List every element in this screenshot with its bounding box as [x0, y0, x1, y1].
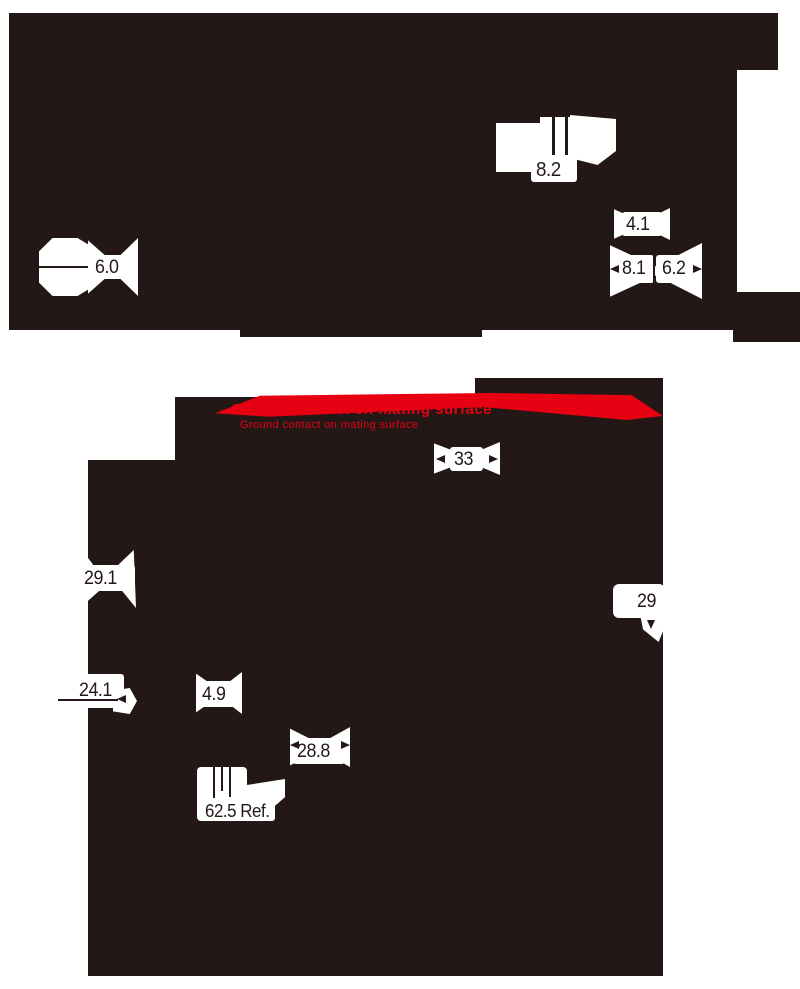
nut-centerline [39, 266, 91, 268]
arrow-down-icon [104, 597, 112, 606]
arrow-right-icon [693, 265, 702, 273]
dimension-label: 6.2 [662, 259, 685, 278]
silhouette-bottom-main [175, 397, 663, 976]
dimension-label: 62.5 Ref. [205, 802, 269, 820]
dimension-label: 8.2 [536, 160, 561, 180]
dimension-side-depth: 24.1 [55, 672, 140, 716]
arrow-left-icon [290, 741, 299, 749]
dimension-flange-thickness: 4.9 [196, 672, 242, 714]
arrow-left-icon [436, 455, 445, 463]
dimension-rear-group: 8.1 6.2 [610, 243, 702, 299]
dimension-body-width: 28.8 [290, 727, 350, 767]
silhouette-bottom-left [88, 460, 175, 976]
dimension-overall-length: 62.5 Ref. [197, 767, 287, 823]
silhouette-right-bump [733, 292, 800, 342]
arrow-right-icon [489, 455, 498, 463]
arrow-right-icon [341, 741, 350, 749]
arrow-left-icon [117, 695, 126, 703]
extension-line-1 [213, 767, 215, 801]
dimension-label: 29.1 [84, 569, 117, 588]
dimension-label: 4.1 [626, 215, 649, 234]
arrow-down-icon [647, 620, 655, 629]
dimension-hex-across-flats: 6.0 [88, 238, 138, 296]
dimension-pin-offset: 4.1 [614, 208, 670, 240]
dimension-wing [640, 614, 670, 642]
dimension-label: 6.0 [95, 258, 118, 277]
extension-line-2 [221, 767, 223, 791]
silhouette-top-step [240, 330, 482, 337]
arrow-left-icon [610, 265, 619, 273]
dimension-label: 29 [637, 592, 656, 611]
arrow-up-icon [104, 552, 112, 561]
dimension-label: 28.8 [297, 742, 330, 761]
dimension-label: 33 [454, 450, 473, 469]
dimension-label: 8.1 [622, 259, 645, 278]
dimension-front-height: 29.1 [80, 550, 136, 608]
dimension-front-width: 29 [613, 584, 673, 644]
dimension-panel-height: 33 [434, 442, 500, 475]
technical-drawing-canvas: 6.0 8.2 4.1 8.1 6.2 Ground contact on ma… [0, 0, 800, 989]
red-annotation-line2: Ground contact on mating surface [240, 419, 419, 431]
extension-line-3 [229, 767, 231, 797]
dimension-label: 24.1 [79, 681, 112, 700]
extension-line [653, 243, 655, 299]
dimension-label: 4.9 [202, 685, 225, 704]
